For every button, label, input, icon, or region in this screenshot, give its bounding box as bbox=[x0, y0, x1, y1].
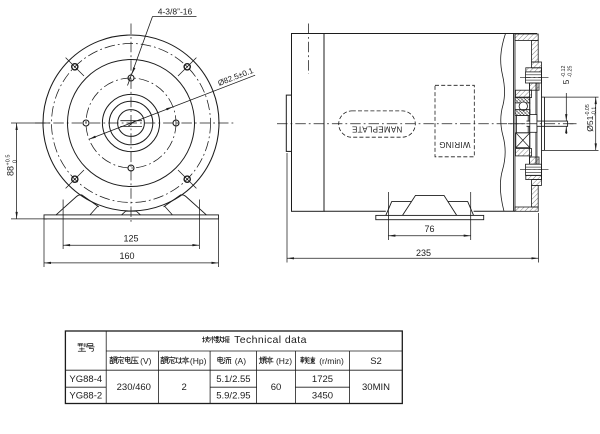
svg-text:-0.1: -0.1 bbox=[591, 107, 597, 116]
svg-text:WIRING: WIRING bbox=[439, 140, 471, 149]
svg-text:3450: 3450 bbox=[312, 391, 333, 402]
svg-text:(r/min): (r/min) bbox=[319, 356, 344, 366]
svg-text:(A): (A) bbox=[235, 356, 247, 366]
svg-text:S2: S2 bbox=[370, 356, 382, 367]
svg-text:5.1/2.55: 5.1/2.55 bbox=[216, 374, 250, 385]
svg-text:1725: 1725 bbox=[312, 374, 333, 385]
svg-text:30MIN: 30MIN bbox=[362, 382, 390, 393]
svg-text:4-3/8”-16: 4-3/8”-16 bbox=[158, 7, 193, 17]
svg-text:88: 88 bbox=[6, 166, 16, 176]
svg-text:5.9/2.95: 5.9/2.95 bbox=[216, 391, 250, 402]
svg-text:NAMEPLATE: NAMEPLATE bbox=[352, 125, 403, 134]
svg-text:Technical data: Technical data bbox=[234, 334, 307, 346]
svg-text:235: 235 bbox=[416, 248, 431, 258]
svg-text:230/460: 230/460 bbox=[117, 382, 151, 393]
svg-text:-0.12: -0.12 bbox=[561, 65, 567, 77]
svg-text:-0.05: -0.05 bbox=[585, 104, 591, 116]
svg-text:2: 2 bbox=[182, 382, 187, 393]
svg-text:(Hz): (Hz) bbox=[276, 356, 292, 366]
svg-text:+0.5: +0.5 bbox=[6, 155, 12, 166]
svg-text:76: 76 bbox=[424, 224, 434, 234]
svg-text:0: 0 bbox=[13, 160, 19, 163]
svg-text:60: 60 bbox=[271, 382, 282, 393]
svg-text:Ø51: Ø51 bbox=[585, 115, 595, 131]
svg-text:125: 125 bbox=[123, 233, 138, 243]
svg-text:5: 5 bbox=[561, 79, 571, 84]
svg-text:(V): (V) bbox=[140, 356, 152, 366]
svg-text:(Hp): (Hp) bbox=[190, 356, 207, 366]
svg-text:YG88-2: YG88-2 bbox=[69, 391, 102, 402]
svg-text:-0.25: -0.25 bbox=[568, 65, 574, 77]
svg-text:YG88-4: YG88-4 bbox=[69, 374, 102, 385]
svg-text:160: 160 bbox=[119, 251, 134, 261]
